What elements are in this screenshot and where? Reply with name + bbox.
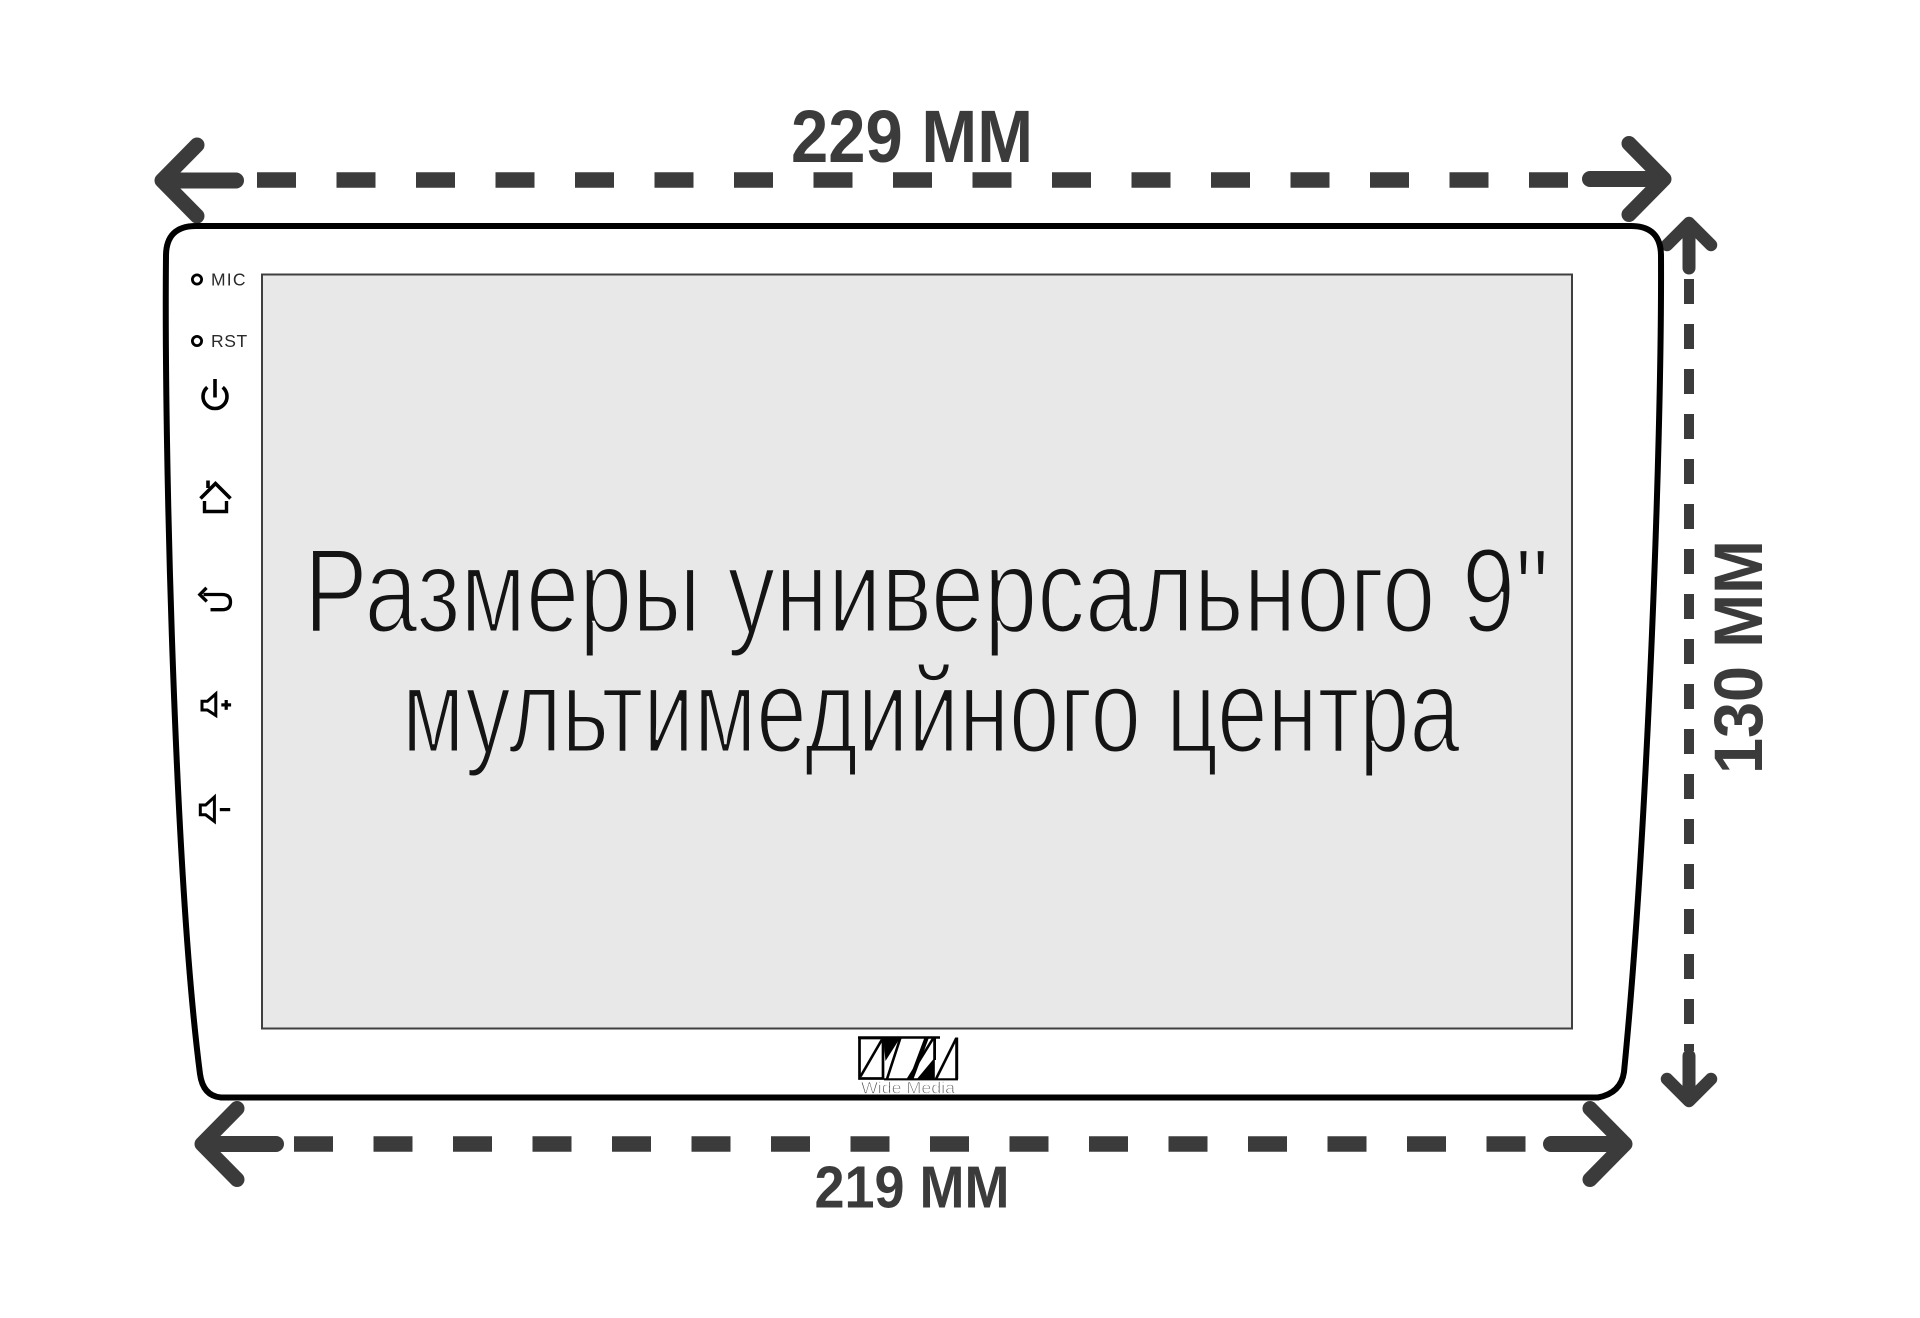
svg-text:229 ММ: 229 ММ [791,95,1033,178]
svg-text:219 ММ: 219 ММ [815,1155,1010,1221]
svg-text:MIC: MIC [211,270,247,290]
svg-text:RST: RST [211,331,248,351]
svg-text:130 ММ: 130 ММ [1700,540,1777,774]
svg-text:Wide Media: Wide Media [861,1079,956,1098]
svg-text:Размеры универсального 9": Размеры универсального 9" [304,524,1549,658]
svg-text:мультимедийного центра: мультимедийного центра [402,644,1460,778]
